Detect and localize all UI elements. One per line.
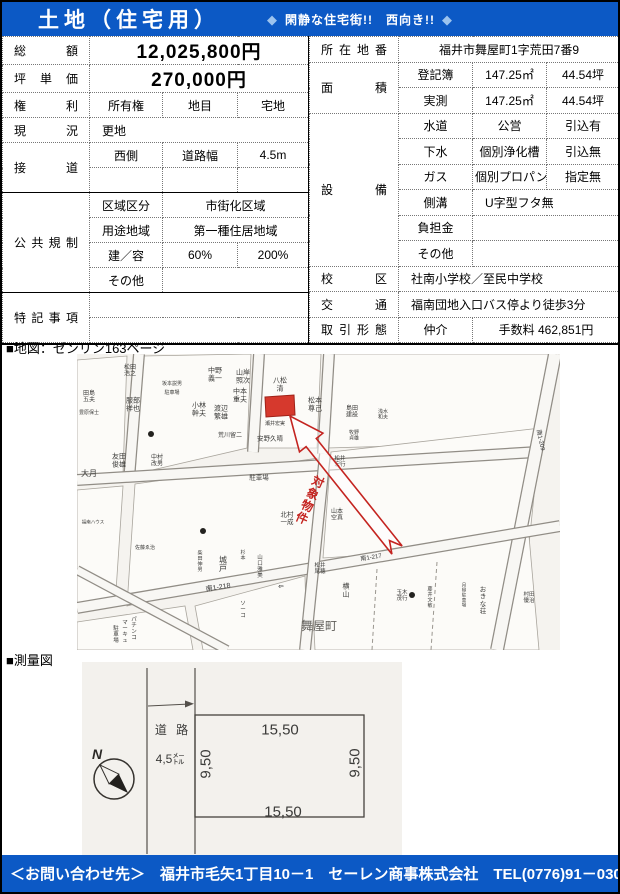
- sewer-label: 下水: [399, 139, 473, 165]
- svg-text:舞屋町: 舞屋町: [301, 619, 337, 633]
- svg-text:柴田伸男: 柴田伸男: [197, 550, 202, 574]
- svg-text:小林幹夫: 小林幹夫: [192, 401, 206, 418]
- svg-text:15,50: 15,50: [264, 803, 302, 820]
- gas-label: ガス: [399, 164, 473, 190]
- empty-cell: [90, 168, 163, 193]
- tagline-text: 閑静な住宅街!! 西向き!!: [285, 13, 435, 27]
- deal-type-value: 仲介: [399, 317, 473, 343]
- public-regulation-label: 公共規制: [3, 193, 90, 293]
- zoning-class-label: 区域区分: [90, 193, 163, 218]
- price-table: 総額 12,025,800円 坪単価 270,000円 権利 所有権 地目 宅地…: [2, 36, 309, 343]
- svg-text:9,50: 9,50: [346, 748, 363, 777]
- empty-cell: [90, 293, 309, 318]
- deal-type-label: 取引形態: [310, 317, 399, 343]
- svg-text:道 路: 道 路: [155, 722, 191, 737]
- facilities-label: 設備: [310, 113, 399, 266]
- tsubo-unit-price-value: 270,000円: [90, 65, 309, 93]
- svg-text:城戸: 城戸: [219, 555, 227, 573]
- water-status: 引込有: [547, 113, 620, 139]
- svg-text:坂本説男: 坂本説男: [162, 380, 182, 387]
- svg-text:おきな荘: おきな荘: [480, 586, 487, 616]
- current-status-label: 現況: [3, 118, 90, 143]
- regulation-other-label: その他: [90, 268, 163, 293]
- header-tagline: ◆閑静な住宅街!! 西向き!!◆: [260, 11, 460, 28]
- road-width-value: 4.5m: [238, 143, 309, 168]
- svg-text:杉本: 杉本: [240, 549, 245, 562]
- svg-text:瀬井宏実: 瀬井宏実: [265, 420, 285, 427]
- svg-text:山口雅美: 山口雅美: [257, 553, 263, 579]
- facilities-other-label: その他: [399, 241, 473, 267]
- svg-text:渡辺繁雄: 渡辺繁雄: [214, 404, 228, 421]
- gutter-label: 側溝: [399, 190, 473, 216]
- use-district-value: 第一種住居地域: [163, 218, 309, 243]
- registered-area-label: 登記簿: [399, 62, 473, 88]
- svg-text:⇐: ⇐: [278, 583, 285, 591]
- road-side-value: 西側: [90, 143, 163, 168]
- lot-address-label: 所在地番: [310, 37, 399, 63]
- footer-contact-bar: ＜お問い合わせ先＞ 福井市毛矢1丁目10－1 セーレン商事株式会社 TEL(07…: [2, 855, 618, 892]
- svg-text:藤井文敏: 藤井文敏: [427, 586, 432, 610]
- measured-area-tsubo: 44.54坪: [547, 88, 620, 114]
- far-value: 200%: [238, 243, 309, 268]
- svg-text:豊原保士: 豊原保士: [79, 409, 99, 416]
- road-width-label: 道路幅: [163, 143, 238, 168]
- zoning-class-value: 市街化区域: [163, 193, 309, 218]
- svg-text:浅水和夫: 浅水和夫: [378, 408, 388, 421]
- brokerage-fee-value: 手数料 462,851円: [473, 317, 620, 343]
- diamond-icon: ◆: [267, 12, 278, 27]
- tsubo-unit-price-label: 坪単価: [3, 65, 90, 93]
- lot-address-value: 福井市舞屋町1字荒田7番9: [399, 37, 620, 63]
- flyer-page: 土地（住宅用） ◆閑静な住宅街!! 西向き!!◆ 総額 12,025,800円 …: [0, 0, 620, 894]
- svg-text:15,50: 15,50: [261, 721, 299, 738]
- total-price-label: 総額: [3, 37, 90, 65]
- svg-text:中本重夫: 中本重夫: [233, 387, 247, 404]
- svg-text:ソーコ: ソーコ: [240, 601, 246, 619]
- gutter-value: U字型フタ無: [473, 190, 620, 216]
- svg-text:中村改男: 中村改男: [151, 453, 163, 468]
- road-access-label: 接道: [3, 143, 90, 193]
- gas-value: 個別プロパン: [473, 164, 547, 190]
- svg-text:山岸照次: 山岸照次: [236, 368, 250, 385]
- svg-text:島田建設: 島田建設: [346, 404, 358, 419]
- contact-info: ＜お問い合わせ先＞ 福井市毛矢1丁目10－1 セーレン商事株式会社 TEL(07…: [10, 863, 620, 884]
- svg-text:横山: 横山: [343, 582, 350, 599]
- bcr-far-label: 建／容: [90, 243, 163, 268]
- svg-text:駐車場: 駐車場: [249, 472, 269, 481]
- svg-text:玉木茂行: 玉木茂行: [396, 588, 408, 602]
- svg-text:松田浩之: 松田浩之: [124, 363, 136, 378]
- water-value: 公営: [473, 113, 547, 139]
- registered-area-tsubo: 44.54坪: [547, 62, 620, 88]
- diamond-icon: ◆: [442, 12, 453, 27]
- svg-text:パチンコ: パチンコ: [131, 616, 137, 641]
- property-tables: 総額 12,025,800円 坪単価 270,000円 権利 所有権 地目 宅地…: [2, 36, 618, 345]
- empty-cell: [163, 268, 309, 293]
- water-label: 水道: [399, 113, 473, 139]
- svg-text:駐車場: 駐車場: [164, 389, 179, 396]
- school-district-label: 校区: [310, 266, 399, 292]
- svg-text:安野久晴: 安野久晴: [257, 433, 284, 442]
- svg-text:荒川留二: 荒川留二: [218, 431, 242, 439]
- current-status-value: 更地: [90, 118, 309, 143]
- svg-text:友田俊雄: 友田俊雄: [112, 452, 126, 469]
- page-title: 土地（住宅用）: [38, 4, 220, 34]
- svg-text:中野義一: 中野義一: [208, 366, 222, 383]
- svg-text:駐車場: 駐車場: [113, 624, 119, 644]
- header-banner: 土地（住宅用） ◆閑静な住宅街!! 西向き!!◆: [2, 2, 618, 36]
- registered-area-m2: 147.25㎡: [473, 62, 547, 88]
- school-district-value: 社南小学校／至民中学校: [399, 266, 620, 292]
- sewer-value: 個別浄化槽: [473, 139, 547, 165]
- land-category-value: 宅地: [238, 93, 309, 118]
- transit-label: 交通: [310, 292, 399, 318]
- rights-value: 所有権: [90, 93, 163, 118]
- detail-table: 所在地番 福井市舞屋町1字荒田7番9 面積 登記簿 147.25㎡ 44.54坪…: [309, 36, 620, 343]
- svg-text:服部祥也: 服部祥也: [126, 396, 140, 413]
- survey-section-heading: ■測量図: [6, 650, 53, 669]
- empty-cell: [473, 241, 620, 267]
- empty-cell: [163, 168, 238, 193]
- empty-cell: [473, 215, 620, 241]
- measured-area-label: 実測: [399, 88, 473, 114]
- svg-text:牧野貞雄: 牧野貞雄: [349, 429, 359, 442]
- survey-drawing: 道 路4,5㍍15,5015,509,509,50N: [82, 662, 402, 857]
- svg-text:村田優治: 村田優治: [523, 590, 535, 604]
- measured-area-m2: 147.25㎡: [473, 88, 547, 114]
- gas-status: 指定無: [547, 164, 620, 190]
- svg-text:大月: 大月: [81, 468, 97, 478]
- svg-text:松井尾穂: 松井尾穂: [314, 561, 326, 575]
- svg-text:山本空真: 山本空真: [331, 507, 343, 522]
- burden-label: 負担金: [399, 215, 473, 241]
- bcr-value: 60%: [163, 243, 238, 268]
- special-notes-label: 特記事項: [3, 293, 90, 343]
- svg-text:佐藤ゑ治: 佐藤ゑ治: [135, 544, 155, 551]
- land-category-label: 地目: [163, 93, 238, 118]
- svg-text:4,5㍍: 4,5㍍: [156, 751, 185, 766]
- svg-text:北村一成: 北村一成: [281, 510, 295, 526]
- area-label: 面積: [310, 62, 399, 113]
- empty-cell: [238, 168, 309, 193]
- sewer-status: 引込無: [547, 139, 620, 165]
- use-district-label: 用途地域: [90, 218, 163, 243]
- transit-value: 福南団地入口バス停より徒歩3分: [399, 292, 620, 318]
- svg-text:N: N: [92, 746, 103, 762]
- svg-text:田島五夫: 田島五夫: [83, 389, 95, 404]
- zenrin-map: 松田浩之坂本説男田島五夫服部祥也豊原保士駐車場中野義一山岸照次中本重夫小林幹夫渡…: [77, 354, 560, 650]
- total-price-value: 12,025,800円: [90, 37, 309, 65]
- rights-label: 権利: [3, 93, 90, 118]
- svg-text:月極駐車場: 月極駐車場: [462, 583, 467, 609]
- svg-text:福南ハウス: 福南ハウス: [82, 519, 105, 526]
- svg-text:松本尊己: 松本尊己: [308, 396, 322, 413]
- svg-text:9,50: 9,50: [197, 749, 214, 778]
- svg-text:マーキュ: マーキュ: [122, 619, 128, 644]
